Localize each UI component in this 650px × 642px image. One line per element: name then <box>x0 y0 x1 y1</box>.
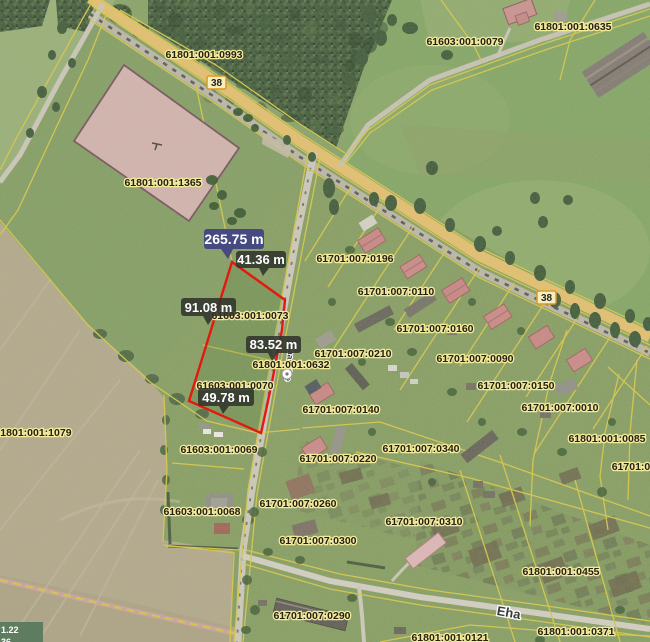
svg-text:49.78 m: 49.78 m <box>202 390 250 405</box>
svg-text:61701:007:0110: 61701:007:0110 <box>358 286 435 298</box>
svg-text:91.08 m: 91.08 m <box>185 300 233 315</box>
svg-text:61801:001:0371: 61801:001:0371 <box>537 626 614 638</box>
svg-text:61701:007:0090: 61701:007:0090 <box>436 353 513 365</box>
svg-text:61801:001:0121: 61801:001:0121 <box>411 632 488 642</box>
svg-text:61801:001:0455: 61801:001:0455 <box>522 566 599 578</box>
svg-text:1.22: 1.22 <box>1 625 19 635</box>
svg-text:36: 36 <box>1 637 11 642</box>
svg-text:61801:001:1079: 61801:001:1079 <box>0 427 72 439</box>
svg-text:265.75 m: 265.75 m <box>204 231 263 247</box>
svg-text:61701:007:0290: 61701:007:0290 <box>273 610 350 622</box>
svg-text:61603:001:0069: 61603:001:0069 <box>180 444 257 456</box>
svg-text:61603:001:0079: 61603:001:0079 <box>426 36 503 48</box>
svg-text:38: 38 <box>541 293 553 304</box>
svg-text:61701:0: 61701:0 <box>612 461 650 473</box>
svg-text:61701:007:0160: 61701:007:0160 <box>396 323 473 335</box>
svg-text:61701:007:0150: 61701:007:0150 <box>477 380 554 392</box>
svg-text:83.52 m: 83.52 m <box>250 337 298 352</box>
svg-text:61701:007:0220: 61701:007:0220 <box>299 453 376 465</box>
svg-text:61701:007:0340: 61701:007:0340 <box>382 443 459 455</box>
svg-text:38: 38 <box>211 78 223 89</box>
svg-text:61701:007:0196: 61701:007:0196 <box>316 253 393 265</box>
svg-text:41.36 m: 41.36 m <box>237 252 285 267</box>
svg-text:61701:007:0140: 61701:007:0140 <box>302 404 379 416</box>
svg-text:61801:001:0632: 61801:001:0632 <box>252 359 329 371</box>
svg-text:61801:001:0993: 61801:001:0993 <box>165 49 242 61</box>
svg-text:61701:007:0010: 61701:007:0010 <box>521 402 598 414</box>
svg-text:61701:007:0260: 61701:007:0260 <box>259 498 336 510</box>
svg-text:61701:007:0300: 61701:007:0300 <box>279 535 356 547</box>
svg-text:61801:001:0635: 61801:001:0635 <box>534 21 611 33</box>
svg-text:61801:001:1365: 61801:001:1365 <box>124 177 201 189</box>
svg-text:61701:007:0310: 61701:007:0310 <box>385 516 462 528</box>
svg-text:61801:001:0085: 61801:001:0085 <box>568 433 645 445</box>
svg-text:61603:001:0068: 61603:001:0068 <box>163 506 240 518</box>
